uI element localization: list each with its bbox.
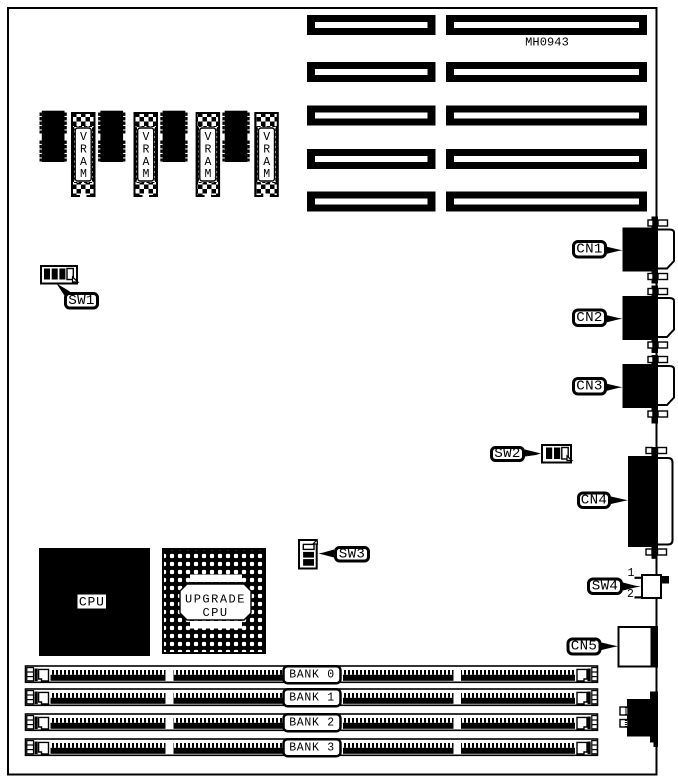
svg-text:BANK 1: BANK 1 bbox=[289, 691, 335, 704]
svg-text:M: M bbox=[263, 168, 270, 181]
svg-text:SW2: SW2 bbox=[494, 446, 520, 462]
svg-text:CPU: CPU bbox=[202, 606, 228, 620]
svg-text:BANK 3: BANK 3 bbox=[289, 741, 335, 754]
svg-text:V: V bbox=[205, 131, 212, 144]
svg-text:CN2: CN2 bbox=[576, 310, 602, 326]
svg-text:R: R bbox=[142, 143, 149, 156]
svg-text:CPU: CPU bbox=[79, 594, 105, 609]
svg-text:R: R bbox=[263, 143, 270, 156]
svg-text:2: 2 bbox=[627, 588, 634, 601]
svg-text:V: V bbox=[80, 131, 87, 144]
svg-text:CN5: CN5 bbox=[571, 639, 597, 655]
svg-text:M: M bbox=[80, 168, 87, 181]
svg-text:V: V bbox=[142, 131, 149, 144]
svg-text:R: R bbox=[80, 143, 87, 156]
svg-text:SW1: SW1 bbox=[68, 293, 94, 309]
svg-text:SW3: SW3 bbox=[339, 547, 365, 563]
svg-text:MH0943: MH0943 bbox=[525, 36, 569, 50]
svg-text:M: M bbox=[205, 168, 212, 181]
svg-text:SW4: SW4 bbox=[592, 579, 618, 595]
svg-text:R: R bbox=[205, 143, 212, 156]
svg-text:A: A bbox=[205, 156, 212, 169]
svg-text:A: A bbox=[263, 156, 270, 169]
svg-text:CN3: CN3 bbox=[576, 379, 602, 395]
svg-text:BANK 2: BANK 2 bbox=[289, 716, 335, 729]
svg-text:A: A bbox=[80, 156, 87, 169]
svg-text:CN1: CN1 bbox=[576, 242, 602, 258]
svg-text:BANK 0: BANK 0 bbox=[289, 668, 335, 681]
svg-text:V: V bbox=[263, 131, 270, 144]
svg-text:1: 1 bbox=[628, 567, 635, 580]
svg-text:A: A bbox=[142, 156, 149, 169]
svg-text:CN4: CN4 bbox=[581, 493, 607, 509]
svg-text:UPGRADE: UPGRADE bbox=[185, 593, 246, 607]
svg-text:M: M bbox=[142, 168, 149, 181]
